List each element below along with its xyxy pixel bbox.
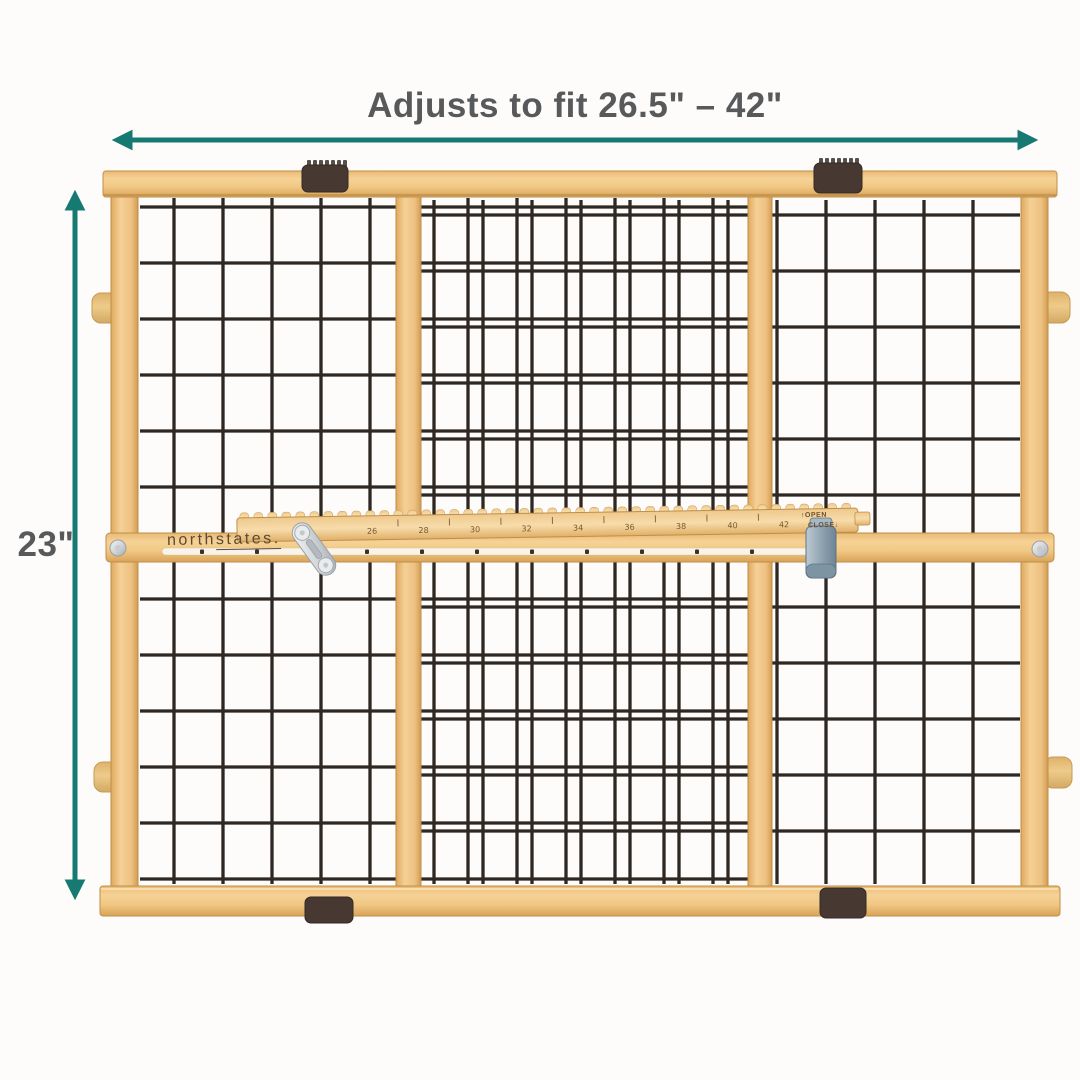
ruler-number: 36 bbox=[624, 523, 634, 532]
slot-hole bbox=[420, 550, 424, 555]
ruler-number: 32 bbox=[521, 524, 531, 533]
bracket-bottom-left bbox=[305, 897, 353, 923]
ruler-open-label: ↑OPEN bbox=[801, 512, 827, 520]
height-dimension-label: 23" bbox=[6, 527, 86, 562]
bracket-bottom-right bbox=[820, 888, 866, 918]
ruler-number: 34 bbox=[573, 523, 583, 532]
ruler-number: 38 bbox=[676, 522, 686, 531]
bracket-top-left bbox=[302, 165, 348, 192]
ruler-number: 28 bbox=[418, 526, 428, 535]
annotated-product-image: 262830323436384042 Adjusts to fit 26.5" … bbox=[0, 0, 1080, 1080]
brand-logo: northstates. bbox=[167, 530, 281, 550]
gate-illustration: 262830323436384042 bbox=[0, 0, 1080, 1080]
ruler-number: 40 bbox=[727, 521, 737, 530]
slot-hole bbox=[695, 550, 699, 555]
slot-hole bbox=[255, 550, 259, 555]
ruler-number: 26 bbox=[367, 527, 377, 536]
ruler-close-label: CLOSE↓ bbox=[808, 522, 839, 530]
slot-hole bbox=[365, 550, 369, 555]
slot-hole bbox=[585, 550, 589, 555]
brand-logo-part2: states. bbox=[216, 530, 281, 550]
gate-bottom-rail bbox=[100, 886, 1060, 916]
ruler-number: 42 bbox=[779, 520, 789, 529]
slot-hole bbox=[200, 550, 204, 555]
slot-hole bbox=[750, 550, 754, 555]
width-dimension-label: Adjusts to fit 26.5" – 42" bbox=[0, 88, 1080, 123]
slot-hole bbox=[530, 550, 534, 555]
ruler-number: 30 bbox=[470, 525, 480, 534]
close-arrow-icon: ↓ bbox=[835, 522, 839, 529]
slot-hole bbox=[640, 550, 644, 555]
brand-logo-part1: north bbox=[167, 531, 216, 549]
gate-top-rail bbox=[103, 171, 1057, 197]
bracket-top-right bbox=[814, 163, 862, 193]
slot-hole bbox=[475, 550, 479, 555]
